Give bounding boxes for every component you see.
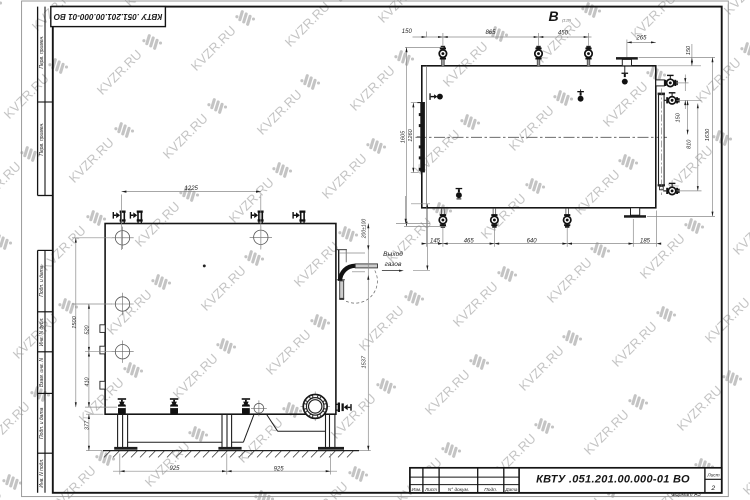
svg-text:Подп.: Подп. bbox=[484, 487, 497, 493]
svg-text:520: 520 bbox=[85, 324, 91, 334]
svg-text:Взам. инв. N: Взам. инв. N bbox=[39, 358, 45, 388]
svg-text:Перв. примен.: Перв. примен. bbox=[39, 122, 45, 155]
svg-text:450: 450 bbox=[558, 31, 569, 37]
svg-text:N° докум.: N° докум. bbox=[448, 487, 469, 493]
svg-text:1537: 1537 bbox=[362, 355, 368, 368]
svg-text:1630: 1630 bbox=[705, 128, 711, 141]
svg-text:Инв. N подл.: Инв. N подл. bbox=[39, 458, 45, 487]
svg-text:КВТУ .051.201.00.000-01 ВО: КВТУ .051.201.00.000-01 ВО bbox=[53, 12, 162, 21]
svg-text:150: 150 bbox=[686, 45, 692, 55]
svg-text:Лист: Лист bbox=[424, 487, 437, 492]
svg-text:150: 150 bbox=[402, 29, 413, 35]
svg-text:Изм.: Изм. bbox=[412, 487, 422, 492]
svg-text:265: 265 bbox=[635, 35, 647, 41]
svg-text:(1:10): (1:10) bbox=[562, 19, 571, 23]
svg-text:185: 185 bbox=[640, 239, 651, 245]
svg-text:925: 925 bbox=[274, 466, 285, 472]
svg-text:925: 925 bbox=[169, 466, 180, 472]
svg-text:Перв. примен.: Перв. примен. bbox=[39, 35, 45, 68]
svg-text:Формат А3: Формат А3 bbox=[671, 492, 701, 498]
svg-text:1605: 1605 bbox=[401, 130, 407, 143]
svg-text:640: 640 bbox=[527, 239, 538, 245]
svg-text:465: 465 bbox=[464, 239, 475, 245]
svg-text:Подп. и дата: Подп. и дата bbox=[39, 265, 45, 297]
svg-text:Выход: Выход bbox=[383, 250, 403, 258]
svg-text:Дата: Дата bbox=[504, 487, 518, 492]
svg-text:1260: 1260 bbox=[408, 128, 414, 141]
svg-text:2: 2 bbox=[710, 485, 715, 492]
svg-text:377: 377 bbox=[85, 420, 91, 430]
svg-text:410: 410 bbox=[85, 376, 91, 386]
svg-text:865: 865 bbox=[485, 30, 496, 36]
svg-text:150: 150 bbox=[675, 112, 681, 122]
svg-text:Подп. и дата: Подп. и дата bbox=[39, 407, 45, 439]
svg-text:1500: 1500 bbox=[72, 315, 78, 328]
svg-text:200±100: 200±100 bbox=[362, 219, 368, 240]
svg-text:В: В bbox=[548, 8, 558, 24]
svg-text:газов: газов bbox=[385, 261, 402, 268]
svg-text:1225: 1225 bbox=[185, 186, 199, 192]
svg-text:Инв. N дубл.: Инв. N дубл. bbox=[39, 317, 45, 346]
svg-text:145: 145 bbox=[430, 238, 441, 244]
svg-text:810: 810 bbox=[686, 139, 692, 149]
svg-text:Лист: Лист bbox=[706, 473, 719, 479]
svg-text:КВТУ .051.201.00.000-01 ВО: КВТУ .051.201.00.000-01 ВО bbox=[536, 474, 690, 486]
